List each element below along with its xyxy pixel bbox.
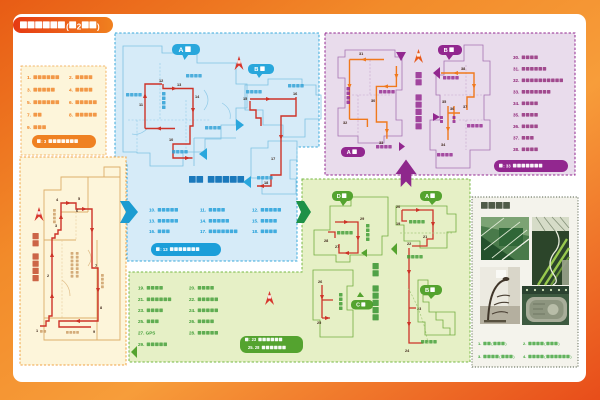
svg-text:11: 11 (139, 103, 143, 107)
svg-text:20: 20 (396, 205, 400, 209)
svg-text:14.: 14. (200, 219, 206, 224)
svg-text:37.: 37. (513, 136, 519, 141)
svg-text:3.: 3. (478, 354, 481, 359)
svg-text:36: 36 (450, 107, 454, 111)
svg-text:20.: 20. (189, 286, 195, 291)
svg-text:C: C (356, 303, 360, 309)
svg-text:: 3: : 3 (41, 139, 47, 144)
svg-text:28: 28 (324, 239, 328, 243)
svg-text:6: 6 (76, 209, 78, 213)
svg-text:33: 33 (379, 141, 383, 145)
svg-text:17: 17 (271, 157, 275, 161)
svg-text:): ) (97, 23, 100, 32)
svg-text:25: 25 (317, 321, 321, 325)
svg-text:18.: 18. (252, 229, 258, 234)
svg-text:18: 18 (264, 181, 268, 185)
svg-text:32.: 32. (513, 78, 519, 83)
svg-text:33.: 33. (513, 90, 519, 95)
svg-text:31.: 31. (513, 67, 519, 72)
svg-text:11.: 11. (200, 208, 206, 213)
svg-text:2.: 2. (523, 341, 526, 346)
svg-text:35: 35 (442, 100, 446, 104)
svg-text:26.: 26. (189, 319, 195, 324)
svg-text:36.: 36. (513, 124, 519, 129)
svg-text:13.: 13. (149, 219, 155, 224)
svg-text:16: 16 (293, 92, 297, 96)
svg-text:10: 10 (169, 138, 173, 142)
svg-text:3: 3 (55, 224, 57, 228)
svg-text:8.: 8. (69, 113, 73, 119)
svg-text:19.: 19. (138, 286, 144, 291)
svg-text:1.: 1. (478, 341, 481, 346)
svg-text:26: 26 (318, 280, 322, 284)
svg-text:(: ( (66, 23, 69, 32)
svg-text:29.: 29. (138, 342, 144, 347)
svg-text:38: 38 (461, 67, 465, 71)
svg-text:7.: 7. (27, 113, 31, 119)
svg-text:9: 9 (93, 330, 95, 334)
svg-text:1: 1 (36, 329, 38, 333)
svg-text:9.: 9. (27, 125, 31, 131)
svg-text:B: B (254, 67, 258, 73)
svg-text:4.: 4. (69, 88, 73, 94)
svg-text:B: B (425, 288, 429, 294)
svg-text:22.: 22. (189, 297, 195, 302)
svg-text:34.: 34. (513, 101, 519, 106)
svg-text:3.: 3. (27, 88, 31, 94)
svg-text:35.: 35. (513, 113, 519, 118)
svg-text:12: 12 (159, 79, 163, 83)
svg-text:15.: 15. (252, 219, 258, 224)
svg-text:38.: 38. (513, 147, 519, 152)
svg-text:13: 13 (177, 83, 181, 87)
svg-text:8: 8 (100, 306, 102, 310)
svg-text:31: 31 (359, 52, 363, 56)
svg-text:25. 28: 25. 28 (248, 345, 260, 350)
svg-text:1.: 1. (27, 75, 31, 81)
svg-text:32: 32 (343, 121, 347, 125)
svg-text:37: 37 (463, 105, 467, 109)
svg-text:17.: 17. (200, 229, 206, 234)
svg-text:29: 29 (360, 217, 364, 221)
svg-text:: 23: : 23 (249, 337, 257, 342)
svg-text:2.: 2. (69, 75, 73, 81)
svg-text:: 33: : 33 (503, 163, 511, 168)
svg-text:12.: 12. (252, 208, 258, 213)
svg-text:28.: 28. (189, 331, 195, 336)
svg-text:5: 5 (78, 197, 80, 201)
svg-text:16.: 16. (149, 229, 155, 234)
svg-text:5.: 5. (27, 100, 31, 106)
svg-text:23.: 23. (138, 308, 144, 313)
svg-text:22: 22 (407, 242, 411, 246)
svg-text:25.: 25. (138, 319, 144, 324)
svg-text:D: D (337, 194, 341, 200)
svg-text:21: 21 (423, 235, 427, 239)
svg-text:B: B (444, 48, 448, 54)
svg-text:15: 15 (243, 97, 247, 101)
svg-text:: 13: : 13 (160, 247, 168, 252)
svg-text:7: 7 (95, 264, 97, 268)
svg-text:A: A (178, 47, 183, 54)
svg-text:27. GPS: 27. GPS (138, 331, 155, 336)
svg-text:30.: 30. (513, 55, 519, 60)
svg-text:19: 19 (396, 222, 400, 226)
svg-text:2: 2 (47, 274, 49, 278)
svg-text:6.: 6. (69, 100, 73, 106)
svg-text:21.: 21. (138, 297, 144, 302)
svg-text:30: 30 (371, 99, 375, 103)
svg-text:27: 27 (335, 245, 339, 249)
svg-text:4.: 4. (523, 354, 526, 359)
svg-text:2: 2 (77, 23, 82, 32)
svg-text:24.: 24. (189, 308, 195, 313)
svg-text:10.: 10. (149, 208, 155, 213)
